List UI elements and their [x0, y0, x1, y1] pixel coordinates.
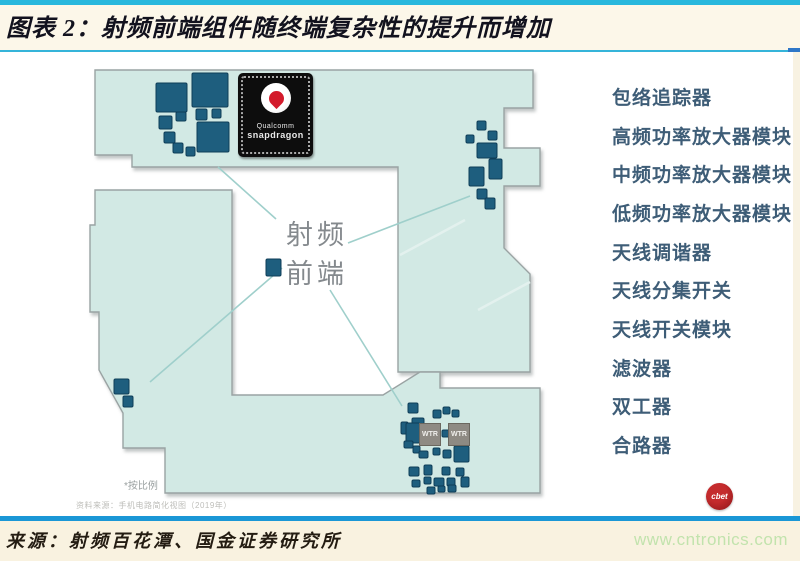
wtr-transceiver-chip: WTR — [448, 423, 470, 446]
component-chip — [408, 403, 418, 413]
component-chip — [477, 143, 497, 158]
component-chip — [442, 467, 450, 475]
chip-brand-name: Qualcomm — [238, 123, 313, 130]
component-list: 包络追踪器高频功率放大器模块中频功率放大器模块低频功率放大器模块天线调谐器天线分… — [612, 77, 792, 464]
component-chip — [197, 122, 229, 152]
component-chip — [477, 121, 486, 130]
component-label: 中频功率放大器模块 — [612, 154, 792, 193]
component-chip — [176, 112, 186, 121]
component-chip — [266, 259, 281, 276]
component-chip — [123, 396, 133, 407]
component-chip — [489, 159, 502, 179]
component-chip — [456, 468, 464, 476]
source-line: 来源：射频百花潭、国金证券研究所 — [6, 527, 342, 553]
component-chip — [438, 486, 445, 492]
rf-frontend-label: 射频 前端 — [286, 216, 348, 294]
component-chip — [427, 487, 435, 494]
component-chip — [409, 467, 419, 476]
component-chip — [469, 167, 484, 186]
component-chip — [412, 480, 420, 487]
chip-product-name: snapdragon — [238, 130, 313, 140]
component-chip — [404, 441, 413, 448]
component-chip — [452, 410, 459, 417]
component-chip — [477, 189, 487, 199]
component-chip — [424, 477, 431, 484]
component-chip — [419, 451, 428, 458]
leader-line — [330, 290, 402, 406]
component-label: 天线开关模块 — [612, 309, 792, 348]
component-chip — [443, 407, 450, 414]
component-chip — [424, 465, 432, 475]
component-chip — [443, 450, 451, 458]
scale-note: *按比例 — [124, 477, 158, 492]
component-chip — [434, 478, 444, 486]
component-chip — [454, 446, 469, 462]
diagram-source-caption: 资料来源：手机电路简化视图（2019年） — [76, 500, 232, 511]
component-label: 天线调谐器 — [612, 232, 792, 271]
component-chip — [159, 116, 172, 129]
component-chip — [488, 131, 497, 140]
component-chip — [433, 410, 441, 418]
snapdragon-logo — [261, 83, 291, 113]
component-label: 合路器 — [612, 425, 792, 464]
watermark-logo: cbet — [706, 483, 733, 510]
component-chip — [433, 448, 440, 455]
component-chip — [212, 109, 221, 118]
component-chip — [192, 73, 228, 107]
component-chip — [406, 423, 420, 443]
wtr-transceiver-chip: WTR — [419, 423, 441, 446]
component-chip — [466, 135, 474, 143]
component-chip — [196, 109, 207, 120]
component-chip — [173, 143, 183, 153]
component-chip — [461, 477, 469, 487]
component-chip — [164, 132, 175, 143]
component-chip — [485, 198, 495, 209]
component-label: 双工器 — [612, 387, 792, 426]
component-chip — [114, 379, 129, 394]
snapdragon-flame-icon — [265, 87, 286, 108]
component-label: 低频功率放大器模块 — [612, 193, 792, 232]
component-label: 高频功率放大器模块 — [612, 116, 792, 155]
figure: 图表 2：射频前端组件随终端复杂性的提升而增加 Qualcomm snapdra… — [0, 0, 800, 561]
snapdragon-chip: Qualcomm snapdragon — [238, 73, 313, 157]
component-chip — [186, 147, 195, 156]
component-label: 滤波器 — [612, 348, 792, 387]
component-label: 包络追踪器 — [612, 77, 792, 116]
component-chip — [156, 83, 187, 112]
component-chip — [448, 485, 456, 492]
site-url[interactable]: www.cntronics.com — [634, 530, 788, 550]
component-label: 天线分集开关 — [612, 270, 792, 309]
footer: 来源：射频百花潭、国金证券研究所 www.cntronics.com — [0, 521, 800, 561]
